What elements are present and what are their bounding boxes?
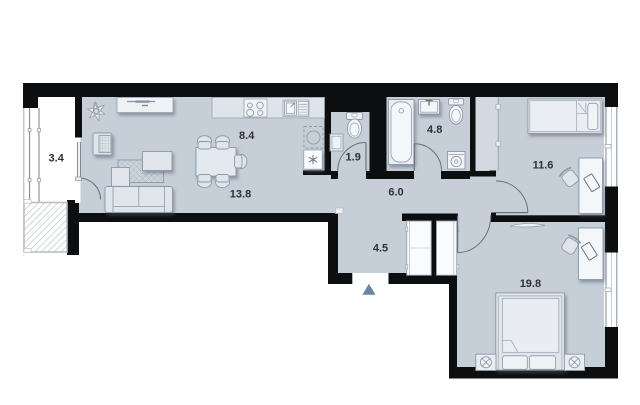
svg-text:11.6: 11.6	[533, 160, 554, 172]
svg-text:4.5: 4.5	[373, 242, 388, 254]
svg-text:13.8: 13.8	[230, 189, 251, 201]
svg-text:3.4: 3.4	[49, 153, 65, 165]
svg-text:8.4: 8.4	[239, 130, 255, 142]
svg-text:4.8: 4.8	[427, 124, 442, 136]
svg-text:6.0: 6.0	[388, 187, 403, 199]
svg-text:19.8: 19.8	[520, 278, 541, 290]
svg-text:1.9: 1.9	[346, 152, 361, 164]
